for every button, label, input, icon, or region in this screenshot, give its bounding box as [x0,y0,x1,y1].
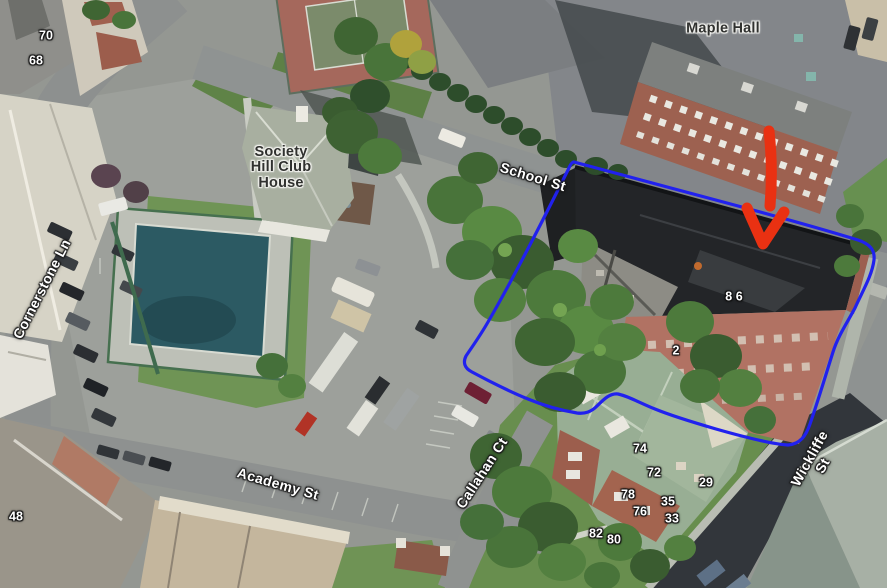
purple-tree [123,181,149,203]
cupola [794,34,803,42]
purple-tree [91,164,121,188]
arrow-shaft [769,131,771,206]
aerial-map-view: School StCornerstone LnAcademy StCallaha… [0,0,887,588]
cupola [806,72,816,81]
aerial-imagery [0,0,887,588]
